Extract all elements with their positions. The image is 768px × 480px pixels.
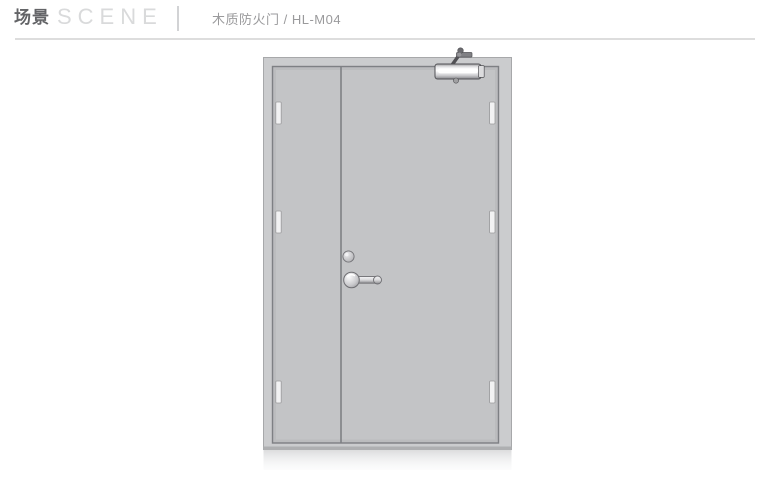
closer-end-plate [479, 66, 485, 78]
door-leaves [273, 67, 499, 444]
hinge-left-top [276, 102, 281, 124]
catalog-page: 场景 SCENE 木质防火门 / HL-M04 [0, 0, 768, 480]
page-title-en: SCENE [57, 3, 163, 30]
door-illustration [255, 42, 520, 470]
floor-reflection [264, 450, 512, 470]
lever-tip [374, 276, 382, 284]
header-vertical-divider [177, 6, 179, 31]
product-label: 木质防火门 / HL-M04 [212, 12, 341, 27]
hinge-right-middle [490, 211, 495, 233]
door-sill-edge [264, 447, 512, 451]
closer-valve-knob [453, 78, 458, 83]
hinge-left-middle [276, 211, 281, 233]
hinge-right-bottom [490, 381, 495, 403]
closer-arm-knuckle [458, 48, 464, 54]
fire-door-svg [255, 42, 520, 470]
hinge-right-top [490, 102, 495, 124]
page-header: 场景 SCENE 木质防火门 / HL-M04 [0, 0, 768, 40]
page-title-cn: 场景 [14, 6, 50, 29]
cylinder-highlight [345, 253, 348, 256]
door-closer [435, 48, 484, 83]
header-horizontal-rule [15, 38, 755, 40]
leaf-panel-area [273, 67, 499, 444]
closer-arm-pivot [457, 53, 461, 57]
lock-cylinder [343, 251, 354, 262]
closer-body-highlight [438, 68, 478, 73]
hinge-left-bottom [276, 381, 281, 403]
